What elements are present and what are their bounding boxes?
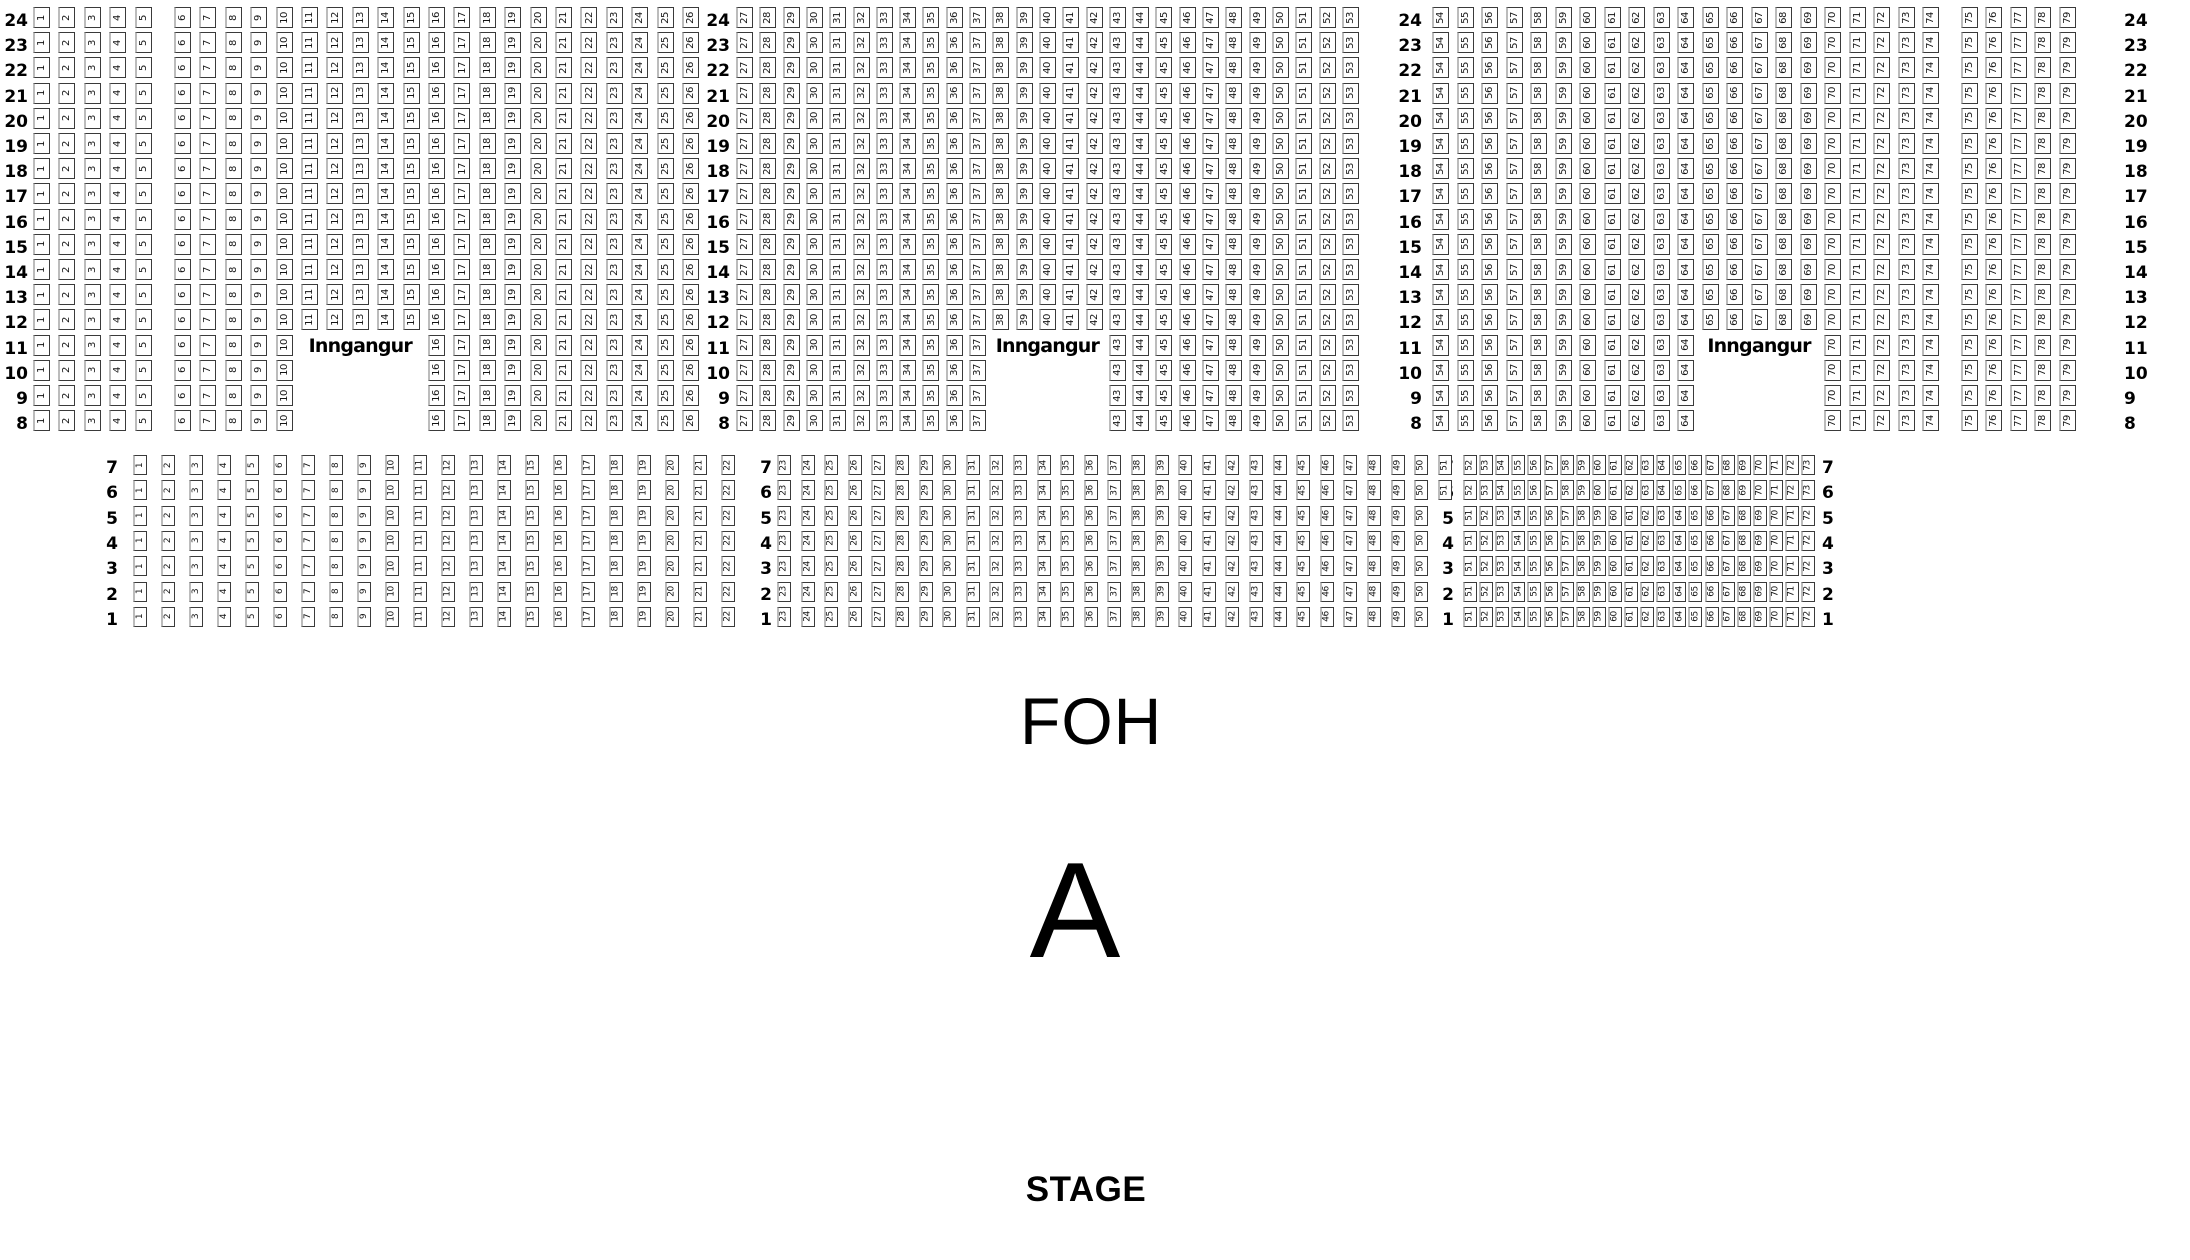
seat[interactable]: 4 <box>217 556 231 576</box>
seat[interactable]: 54 <box>1495 480 1509 500</box>
seat[interactable]: 64 <box>1677 410 1694 431</box>
seat[interactable]: 35 <box>922 209 939 230</box>
seat[interactable]: 62 <box>1628 385 1645 406</box>
seat[interactable]: 71 <box>1785 582 1799 602</box>
seat[interactable]: 61 <box>1624 582 1638 602</box>
seat[interactable]: 54 <box>1511 607 1525 627</box>
seat[interactable]: 6 <box>174 385 191 406</box>
seat[interactable]: 3 <box>84 57 101 78</box>
seat[interactable]: 40 <box>1039 183 1056 204</box>
seat[interactable]: 25 <box>657 32 674 53</box>
seat[interactable]: 37 <box>1107 480 1121 500</box>
seat[interactable]: 23 <box>606 284 623 305</box>
seat[interactable]: 37 <box>969 7 986 28</box>
seat[interactable]: 29 <box>783 259 800 280</box>
seat[interactable]: 21 <box>693 455 707 475</box>
seat[interactable]: 10 <box>385 556 399 576</box>
seat[interactable]: 29 <box>783 410 800 431</box>
seat[interactable]: 13 <box>352 83 369 104</box>
seat[interactable]: 12 <box>326 7 343 28</box>
seat[interactable]: 32 <box>853 57 870 78</box>
seat[interactable]: 2 <box>161 531 175 551</box>
seat[interactable]: 51 <box>1295 7 1312 28</box>
seat[interactable]: 79 <box>2059 335 2076 356</box>
seat[interactable]: 71 <box>1769 455 1783 475</box>
seat[interactable]: 44 <box>1132 7 1149 28</box>
seat[interactable]: 9 <box>357 480 371 500</box>
seat[interactable]: 28 <box>759 335 776 356</box>
seat[interactable]: 54 <box>1432 410 1449 431</box>
seat[interactable]: 31 <box>966 455 980 475</box>
seat[interactable]: 70 <box>1753 480 1767 500</box>
seat[interactable]: 58 <box>1530 183 1547 204</box>
seat[interactable]: 41 <box>1202 607 1216 627</box>
seat[interactable]: 69 <box>1800 209 1817 230</box>
seat[interactable]: 42 <box>1086 259 1103 280</box>
seat[interactable]: 35 <box>922 410 939 431</box>
seat[interactable]: 8 <box>225 183 242 204</box>
seat[interactable]: 74 <box>1922 259 1939 280</box>
seat[interactable]: 44 <box>1132 385 1149 406</box>
seat[interactable]: 45 <box>1155 7 1172 28</box>
seat[interactable]: 30 <box>806 309 823 330</box>
seat[interactable]: 29 <box>783 57 800 78</box>
seat[interactable]: 25 <box>657 360 674 381</box>
seat[interactable]: 8 <box>225 259 242 280</box>
seat[interactable]: 66 <box>1726 57 1743 78</box>
seat[interactable]: 73 <box>1898 410 1915 431</box>
seat[interactable]: 62 <box>1628 209 1645 230</box>
seat[interactable]: 59 <box>1555 385 1572 406</box>
seat[interactable]: 11 <box>413 506 427 526</box>
seat[interactable]: 56 <box>1481 385 1498 406</box>
seat[interactable]: 38 <box>992 158 1009 179</box>
seat[interactable]: 63 <box>1653 309 1670 330</box>
seat[interactable]: 41 <box>1202 480 1216 500</box>
seat[interactable]: 31 <box>966 556 980 576</box>
seat[interactable]: 69 <box>1800 158 1817 179</box>
seat[interactable]: 70 <box>1824 158 1841 179</box>
seat[interactable]: 54 <box>1432 209 1449 230</box>
seat[interactable]: 75 <box>1961 360 1978 381</box>
seat[interactable]: 38 <box>1131 506 1145 526</box>
seat[interactable]: 4 <box>217 607 231 627</box>
seat[interactable]: 22 <box>580 209 597 230</box>
seat[interactable]: 66 <box>1726 234 1743 255</box>
seat[interactable]: 72 <box>1873 360 1890 381</box>
seat[interactable]: 70 <box>1769 582 1783 602</box>
seat[interactable]: 43 <box>1109 259 1126 280</box>
seat[interactable]: 32 <box>853 360 870 381</box>
seat[interactable]: 7 <box>199 108 216 129</box>
seat[interactable]: 20 <box>530 234 547 255</box>
seat[interactable]: 52 <box>1319 284 1336 305</box>
seat[interactable]: 36 <box>1084 607 1098 627</box>
seat[interactable]: 61 <box>1604 158 1621 179</box>
seat[interactable]: 57 <box>1506 284 1523 305</box>
seat[interactable]: 13 <box>352 234 369 255</box>
seat[interactable]: 4 <box>217 531 231 551</box>
seat[interactable]: 44 <box>1132 234 1149 255</box>
seat[interactable]: 14 <box>377 83 394 104</box>
seat[interactable]: 33 <box>1013 582 1027 602</box>
seat[interactable]: 16 <box>428 7 445 28</box>
seat[interactable]: 65 <box>1688 607 1702 627</box>
seat[interactable]: 39 <box>1016 83 1033 104</box>
seat[interactable]: 63 <box>1656 556 1670 576</box>
seat[interactable]: 54 <box>1511 531 1525 551</box>
seat[interactable]: 63 <box>1653 158 1670 179</box>
seat[interactable]: 67 <box>1751 183 1768 204</box>
seat[interactable]: 32 <box>853 259 870 280</box>
seat[interactable]: 23 <box>606 57 623 78</box>
seat[interactable]: 22 <box>721 480 735 500</box>
seat[interactable]: 32 <box>853 410 870 431</box>
seat[interactable]: 75 <box>1961 158 1978 179</box>
seat[interactable]: 1 <box>33 183 50 204</box>
seat[interactable]: 36 <box>946 309 963 330</box>
seat[interactable]: 10 <box>385 455 399 475</box>
seat[interactable]: 71 <box>1849 385 1866 406</box>
seat[interactable]: 35 <box>1060 506 1074 526</box>
seat[interactable]: 47 <box>1202 234 1219 255</box>
seat[interactable]: 61 <box>1604 133 1621 154</box>
seat[interactable]: 50 <box>1272 309 1289 330</box>
seat[interactable]: 15 <box>403 57 420 78</box>
seat[interactable]: 18 <box>479 158 496 179</box>
seat[interactable]: 53 <box>1495 531 1509 551</box>
seat[interactable]: 59 <box>1555 410 1572 431</box>
seat[interactable]: 67 <box>1751 158 1768 179</box>
seat[interactable]: 6 <box>273 455 287 475</box>
seat[interactable]: 62 <box>1628 284 1645 305</box>
seat[interactable]: 55 <box>1527 506 1541 526</box>
seat[interactable]: 66 <box>1726 83 1743 104</box>
seat[interactable]: 29 <box>919 455 933 475</box>
seat[interactable]: 48 <box>1225 32 1242 53</box>
seat[interactable]: 68 <box>1737 556 1751 576</box>
seat[interactable]: 31 <box>829 259 846 280</box>
seat[interactable]: 29 <box>783 209 800 230</box>
seat[interactable]: 51 <box>1295 309 1312 330</box>
seat[interactable]: 52 <box>1319 385 1336 406</box>
seat[interactable]: 68 <box>1775 32 1792 53</box>
seat[interactable]: 76 <box>1985 183 2002 204</box>
seat[interactable]: 14 <box>377 108 394 129</box>
seat[interactable]: 69 <box>1753 607 1767 627</box>
seat[interactable]: 69 <box>1753 506 1767 526</box>
seat[interactable]: 58 <box>1576 531 1590 551</box>
seat[interactable]: 27 <box>871 607 885 627</box>
seat[interactable]: 51 <box>1295 410 1312 431</box>
seat[interactable]: 67 <box>1751 209 1768 230</box>
seat[interactable]: 79 <box>2059 83 2076 104</box>
seat[interactable]: 13 <box>352 7 369 28</box>
seat[interactable]: 46 <box>1320 556 1334 576</box>
seat[interactable]: 24 <box>631 158 648 179</box>
seat[interactable]: 63 <box>1656 506 1670 526</box>
seat[interactable]: 62 <box>1640 506 1654 526</box>
seat[interactable]: 76 <box>1985 385 2002 406</box>
seat[interactable]: 21 <box>693 480 707 500</box>
seat[interactable]: 35 <box>922 284 939 305</box>
seat[interactable]: 68 <box>1775 183 1792 204</box>
seat[interactable]: 26 <box>682 259 699 280</box>
seat[interactable]: 26 <box>682 7 699 28</box>
seat[interactable]: 46 <box>1320 607 1334 627</box>
seat[interactable]: 11 <box>301 284 318 305</box>
seat[interactable]: 36 <box>1084 531 1098 551</box>
seat[interactable]: 11 <box>301 158 318 179</box>
seat[interactable]: 43 <box>1249 556 1263 576</box>
seat[interactable]: 5 <box>135 335 152 356</box>
seat[interactable]: 52 <box>1319 234 1336 255</box>
seat[interactable]: 11 <box>301 309 318 330</box>
seat[interactable]: 8 <box>329 480 343 500</box>
seat[interactable]: 27 <box>736 108 753 129</box>
seat[interactable]: 79 <box>2059 284 2076 305</box>
seat[interactable]: 73 <box>1898 83 1915 104</box>
seat[interactable]: 23 <box>606 183 623 204</box>
seat[interactable]: 4 <box>109 32 126 53</box>
seat[interactable]: 19 <box>504 284 521 305</box>
seat[interactable]: 64 <box>1677 259 1694 280</box>
seat[interactable]: 65 <box>1688 556 1702 576</box>
seat[interactable]: 23 <box>777 480 791 500</box>
seat[interactable]: 38 <box>992 309 1009 330</box>
seat[interactable]: 72 <box>1873 335 1890 356</box>
seat[interactable]: 60 <box>1579 259 1596 280</box>
seat[interactable]: 52 <box>1319 108 1336 129</box>
seat[interactable]: 65 <box>1702 83 1719 104</box>
seat[interactable]: 57 <box>1560 582 1574 602</box>
seat[interactable]: 66 <box>1705 607 1719 627</box>
seat[interactable]: 10 <box>385 607 399 627</box>
seat[interactable]: 15 <box>525 531 539 551</box>
seat[interactable]: 63 <box>1653 410 1670 431</box>
seat[interactable]: 11 <box>301 133 318 154</box>
seat[interactable]: 27 <box>736 32 753 53</box>
seat[interactable]: 35 <box>922 385 939 406</box>
seat[interactable]: 63 <box>1653 32 1670 53</box>
seat[interactable]: 43 <box>1109 108 1126 129</box>
seat[interactable]: 1 <box>133 506 147 526</box>
seat[interactable]: 10 <box>276 309 293 330</box>
seat[interactable]: 31 <box>829 83 846 104</box>
seat[interactable]: 38 <box>992 259 1009 280</box>
seat[interactable]: 46 <box>1320 582 1334 602</box>
seat[interactable]: 3 <box>84 360 101 381</box>
seat[interactable]: 3 <box>84 209 101 230</box>
seat[interactable]: 22 <box>580 183 597 204</box>
seat[interactable]: 77 <box>2010 284 2027 305</box>
seat[interactable]: 56 <box>1544 607 1558 627</box>
seat[interactable]: 16 <box>428 410 445 431</box>
seat[interactable]: 31 <box>829 57 846 78</box>
seat[interactable]: 75 <box>1961 108 1978 129</box>
seat[interactable]: 36 <box>946 410 963 431</box>
seat[interactable]: 39 <box>1016 183 1033 204</box>
seat[interactable]: 53 <box>1342 108 1359 129</box>
seat[interactable]: 55 <box>1457 360 1474 381</box>
seat[interactable]: 49 <box>1391 531 1405 551</box>
seat[interactable]: 33 <box>1013 556 1027 576</box>
seat[interactable]: 39 <box>1016 32 1033 53</box>
seat[interactable]: 14 <box>497 455 511 475</box>
seat[interactable]: 61 <box>1604 57 1621 78</box>
seat[interactable]: 33 <box>876 7 893 28</box>
seat[interactable]: 52 <box>1319 209 1336 230</box>
seat[interactable]: 59 <box>1555 360 1572 381</box>
seat[interactable]: 68 <box>1775 83 1792 104</box>
seat[interactable]: 22 <box>721 531 735 551</box>
seat[interactable]: 58 <box>1530 284 1547 305</box>
seat[interactable]: 53 <box>1342 7 1359 28</box>
seat[interactable]: 38 <box>992 284 1009 305</box>
seat[interactable]: 51 <box>1463 582 1477 602</box>
seat[interactable]: 64 <box>1677 57 1694 78</box>
seat[interactable]: 4 <box>109 284 126 305</box>
seat[interactable]: 36 <box>946 7 963 28</box>
seat[interactable]: 33 <box>876 284 893 305</box>
seat[interactable]: 36 <box>946 259 963 280</box>
seat[interactable]: 32 <box>989 607 1003 627</box>
seat[interactable]: 5 <box>135 209 152 230</box>
seat[interactable]: 35 <box>922 259 939 280</box>
seat[interactable]: 63 <box>1653 335 1670 356</box>
seat[interactable]: 74 <box>1922 133 1939 154</box>
seat[interactable]: 23 <box>606 410 623 431</box>
seat[interactable]: 70 <box>1824 284 1841 305</box>
seat[interactable]: 62 <box>1640 556 1654 576</box>
seat[interactable]: 24 <box>631 83 648 104</box>
seat[interactable]: 44 <box>1132 108 1149 129</box>
seat[interactable]: 64 <box>1677 209 1694 230</box>
seat[interactable]: 10 <box>385 582 399 602</box>
seat[interactable]: 19 <box>504 410 521 431</box>
seat[interactable]: 27 <box>871 506 885 526</box>
seat[interactable]: 79 <box>2059 57 2076 78</box>
seat[interactable]: 35 <box>922 57 939 78</box>
seat[interactable]: 36 <box>946 57 963 78</box>
seat[interactable]: 9 <box>250 209 267 230</box>
seat[interactable]: 22 <box>580 385 597 406</box>
seat[interactable]: 43 <box>1109 335 1126 356</box>
seat[interactable]: 44 <box>1132 335 1149 356</box>
seat[interactable]: 11 <box>301 209 318 230</box>
seat[interactable]: 71 <box>1849 309 1866 330</box>
seat[interactable]: 19 <box>637 506 651 526</box>
seat[interactable]: 47 <box>1202 335 1219 356</box>
seat[interactable]: 27 <box>736 385 753 406</box>
seat[interactable]: 39 <box>1155 531 1169 551</box>
seat[interactable]: 64 <box>1677 133 1694 154</box>
seat[interactable]: 5 <box>135 83 152 104</box>
seat[interactable]: 16 <box>428 108 445 129</box>
seat[interactable]: 71 <box>1849 158 1866 179</box>
seat[interactable]: 66 <box>1688 480 1702 500</box>
seat[interactable]: 45 <box>1155 284 1172 305</box>
seat[interactable]: 13 <box>352 108 369 129</box>
seat[interactable]: 50 <box>1272 410 1289 431</box>
seat[interactable]: 30 <box>806 7 823 28</box>
seat[interactable]: 53 <box>1342 209 1359 230</box>
seat[interactable]: 60 <box>1579 133 1596 154</box>
seat[interactable]: 4 <box>109 183 126 204</box>
seat[interactable]: 57 <box>1506 83 1523 104</box>
seat[interactable]: 7 <box>199 158 216 179</box>
seat[interactable]: 6 <box>174 183 191 204</box>
seat[interactable]: 33 <box>876 108 893 129</box>
seat[interactable]: 19 <box>504 158 521 179</box>
seat[interactable]: 52 <box>1319 410 1336 431</box>
seat[interactable]: 66 <box>1726 108 1743 129</box>
seat[interactable]: 31 <box>829 284 846 305</box>
seat[interactable]: 54 <box>1432 133 1449 154</box>
seat[interactable]: 67 <box>1721 556 1735 576</box>
seat[interactable]: 51 <box>1438 480 1452 500</box>
seat[interactable]: 65 <box>1702 209 1719 230</box>
seat[interactable]: 21 <box>555 108 572 129</box>
seat[interactable]: 74 <box>1922 57 1939 78</box>
seat[interactable]: 7 <box>301 480 315 500</box>
seat[interactable]: 78 <box>2034 32 2051 53</box>
seat[interactable]: 14 <box>377 259 394 280</box>
seat[interactable]: 47 <box>1343 480 1357 500</box>
seat[interactable]: 44 <box>1132 32 1149 53</box>
seat[interactable]: 11 <box>301 83 318 104</box>
seat[interactable]: 7 <box>199 183 216 204</box>
seat[interactable]: 77 <box>2010 183 2027 204</box>
seat[interactable]: 33 <box>1013 506 1027 526</box>
seat[interactable]: 54 <box>1432 309 1449 330</box>
seat[interactable]: 39 <box>1155 506 1169 526</box>
seat[interactable]: 61 <box>1604 32 1621 53</box>
seat[interactable]: 25 <box>824 455 838 475</box>
seat[interactable]: 44 <box>1132 209 1149 230</box>
seat[interactable]: 34 <box>899 7 916 28</box>
seat[interactable]: 17 <box>581 506 595 526</box>
seat[interactable]: 60 <box>1592 455 1606 475</box>
seat[interactable]: 34 <box>1037 506 1051 526</box>
seat[interactable]: 6 <box>174 133 191 154</box>
seat[interactable]: 40 <box>1178 531 1192 551</box>
seat[interactable]: 27 <box>736 309 753 330</box>
seat[interactable]: 1 <box>33 7 50 28</box>
seat[interactable]: 63 <box>1653 209 1670 230</box>
seat[interactable]: 13 <box>352 158 369 179</box>
seat[interactable]: 78 <box>2034 209 2051 230</box>
seat[interactable]: 26 <box>848 455 862 475</box>
seat[interactable]: 12 <box>441 480 455 500</box>
seat[interactable]: 34 <box>899 133 916 154</box>
seat[interactable]: 28 <box>759 32 776 53</box>
seat[interactable]: 57 <box>1560 607 1574 627</box>
seat[interactable]: 40 <box>1039 234 1056 255</box>
seat[interactable]: 30 <box>806 32 823 53</box>
seat[interactable]: 52 <box>1479 582 1493 602</box>
seat[interactable]: 59 <box>1592 531 1606 551</box>
seat[interactable]: 52 <box>1319 7 1336 28</box>
seat[interactable]: 16 <box>428 234 445 255</box>
seat[interactable]: 68 <box>1721 480 1735 500</box>
seat[interactable]: 62 <box>1628 234 1645 255</box>
seat[interactable]: 6 <box>174 209 191 230</box>
seat[interactable]: 5 <box>245 582 259 602</box>
seat[interactable]: 18 <box>479 183 496 204</box>
seat[interactable]: 21 <box>555 32 572 53</box>
seat[interactable]: 66 <box>1705 531 1719 551</box>
